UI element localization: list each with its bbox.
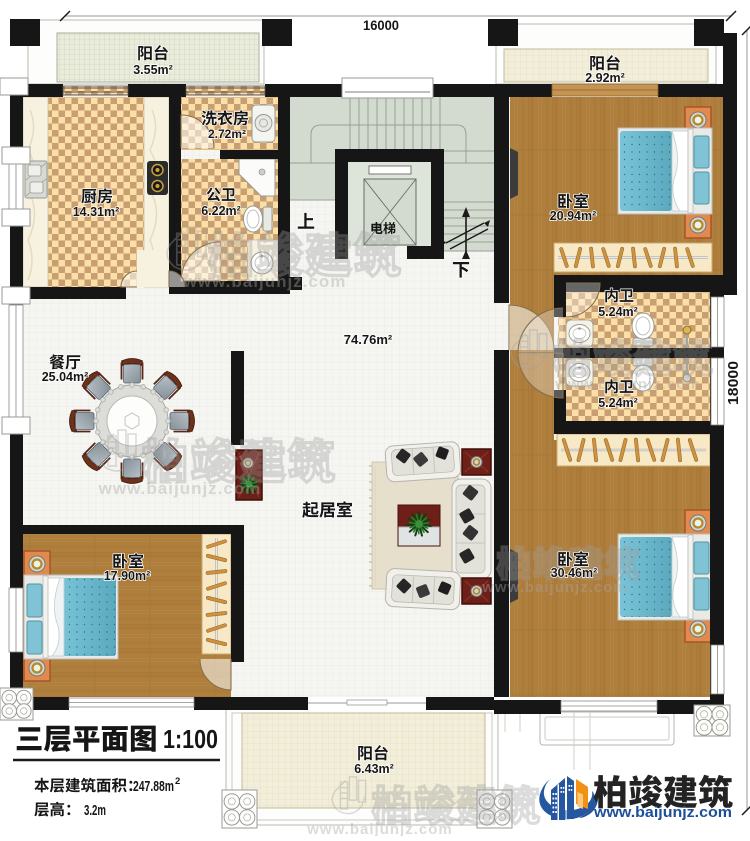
- svg-text:247.88m: 247.88m: [133, 779, 174, 795]
- svg-text:5.24m²: 5.24m²: [598, 305, 638, 319]
- svg-text:6.43m²: 6.43m²: [354, 762, 394, 776]
- svg-text:74.76m²: 74.76m²: [344, 332, 393, 347]
- svg-text:3.55m²: 3.55m²: [133, 63, 173, 77]
- svg-text:20.94m²: 20.94m²: [550, 209, 597, 223]
- svg-text:www.baijunjz.com: www.baijunjz.com: [593, 805, 732, 821]
- svg-text:www.baijunjz.com: www.baijunjz.com: [183, 272, 347, 291]
- svg-text:2: 2: [175, 776, 180, 787]
- svg-text:www.baijunjz.com: www.baijunjz.com: [481, 579, 627, 596]
- svg-text:30.46m²: 30.46m²: [551, 566, 598, 580]
- svg-text:www.baijunjz.com: www.baijunjz.com: [98, 479, 262, 498]
- svg-text:2.92m²: 2.92m²: [585, 71, 625, 85]
- svg-text:5.24m²: 5.24m²: [598, 396, 638, 410]
- svg-text:6.22m²: 6.22m²: [201, 204, 241, 218]
- svg-text:2.72m²: 2.72m²: [208, 127, 246, 141]
- svg-text:3.2m: 3.2m: [84, 803, 106, 819]
- svg-text:25.04m²: 25.04m²: [42, 370, 89, 384]
- svg-text:1:100: 1:100: [163, 724, 218, 754]
- svg-text:18000: 18000: [726, 361, 742, 405]
- svg-text:17.90m²: 17.90m²: [104, 569, 151, 583]
- svg-text:www.baijunjz.com: www.baijunjz.com: [306, 821, 452, 836]
- svg-text:14.31m²: 14.31m²: [73, 205, 120, 219]
- svg-text:16000: 16000: [363, 17, 399, 33]
